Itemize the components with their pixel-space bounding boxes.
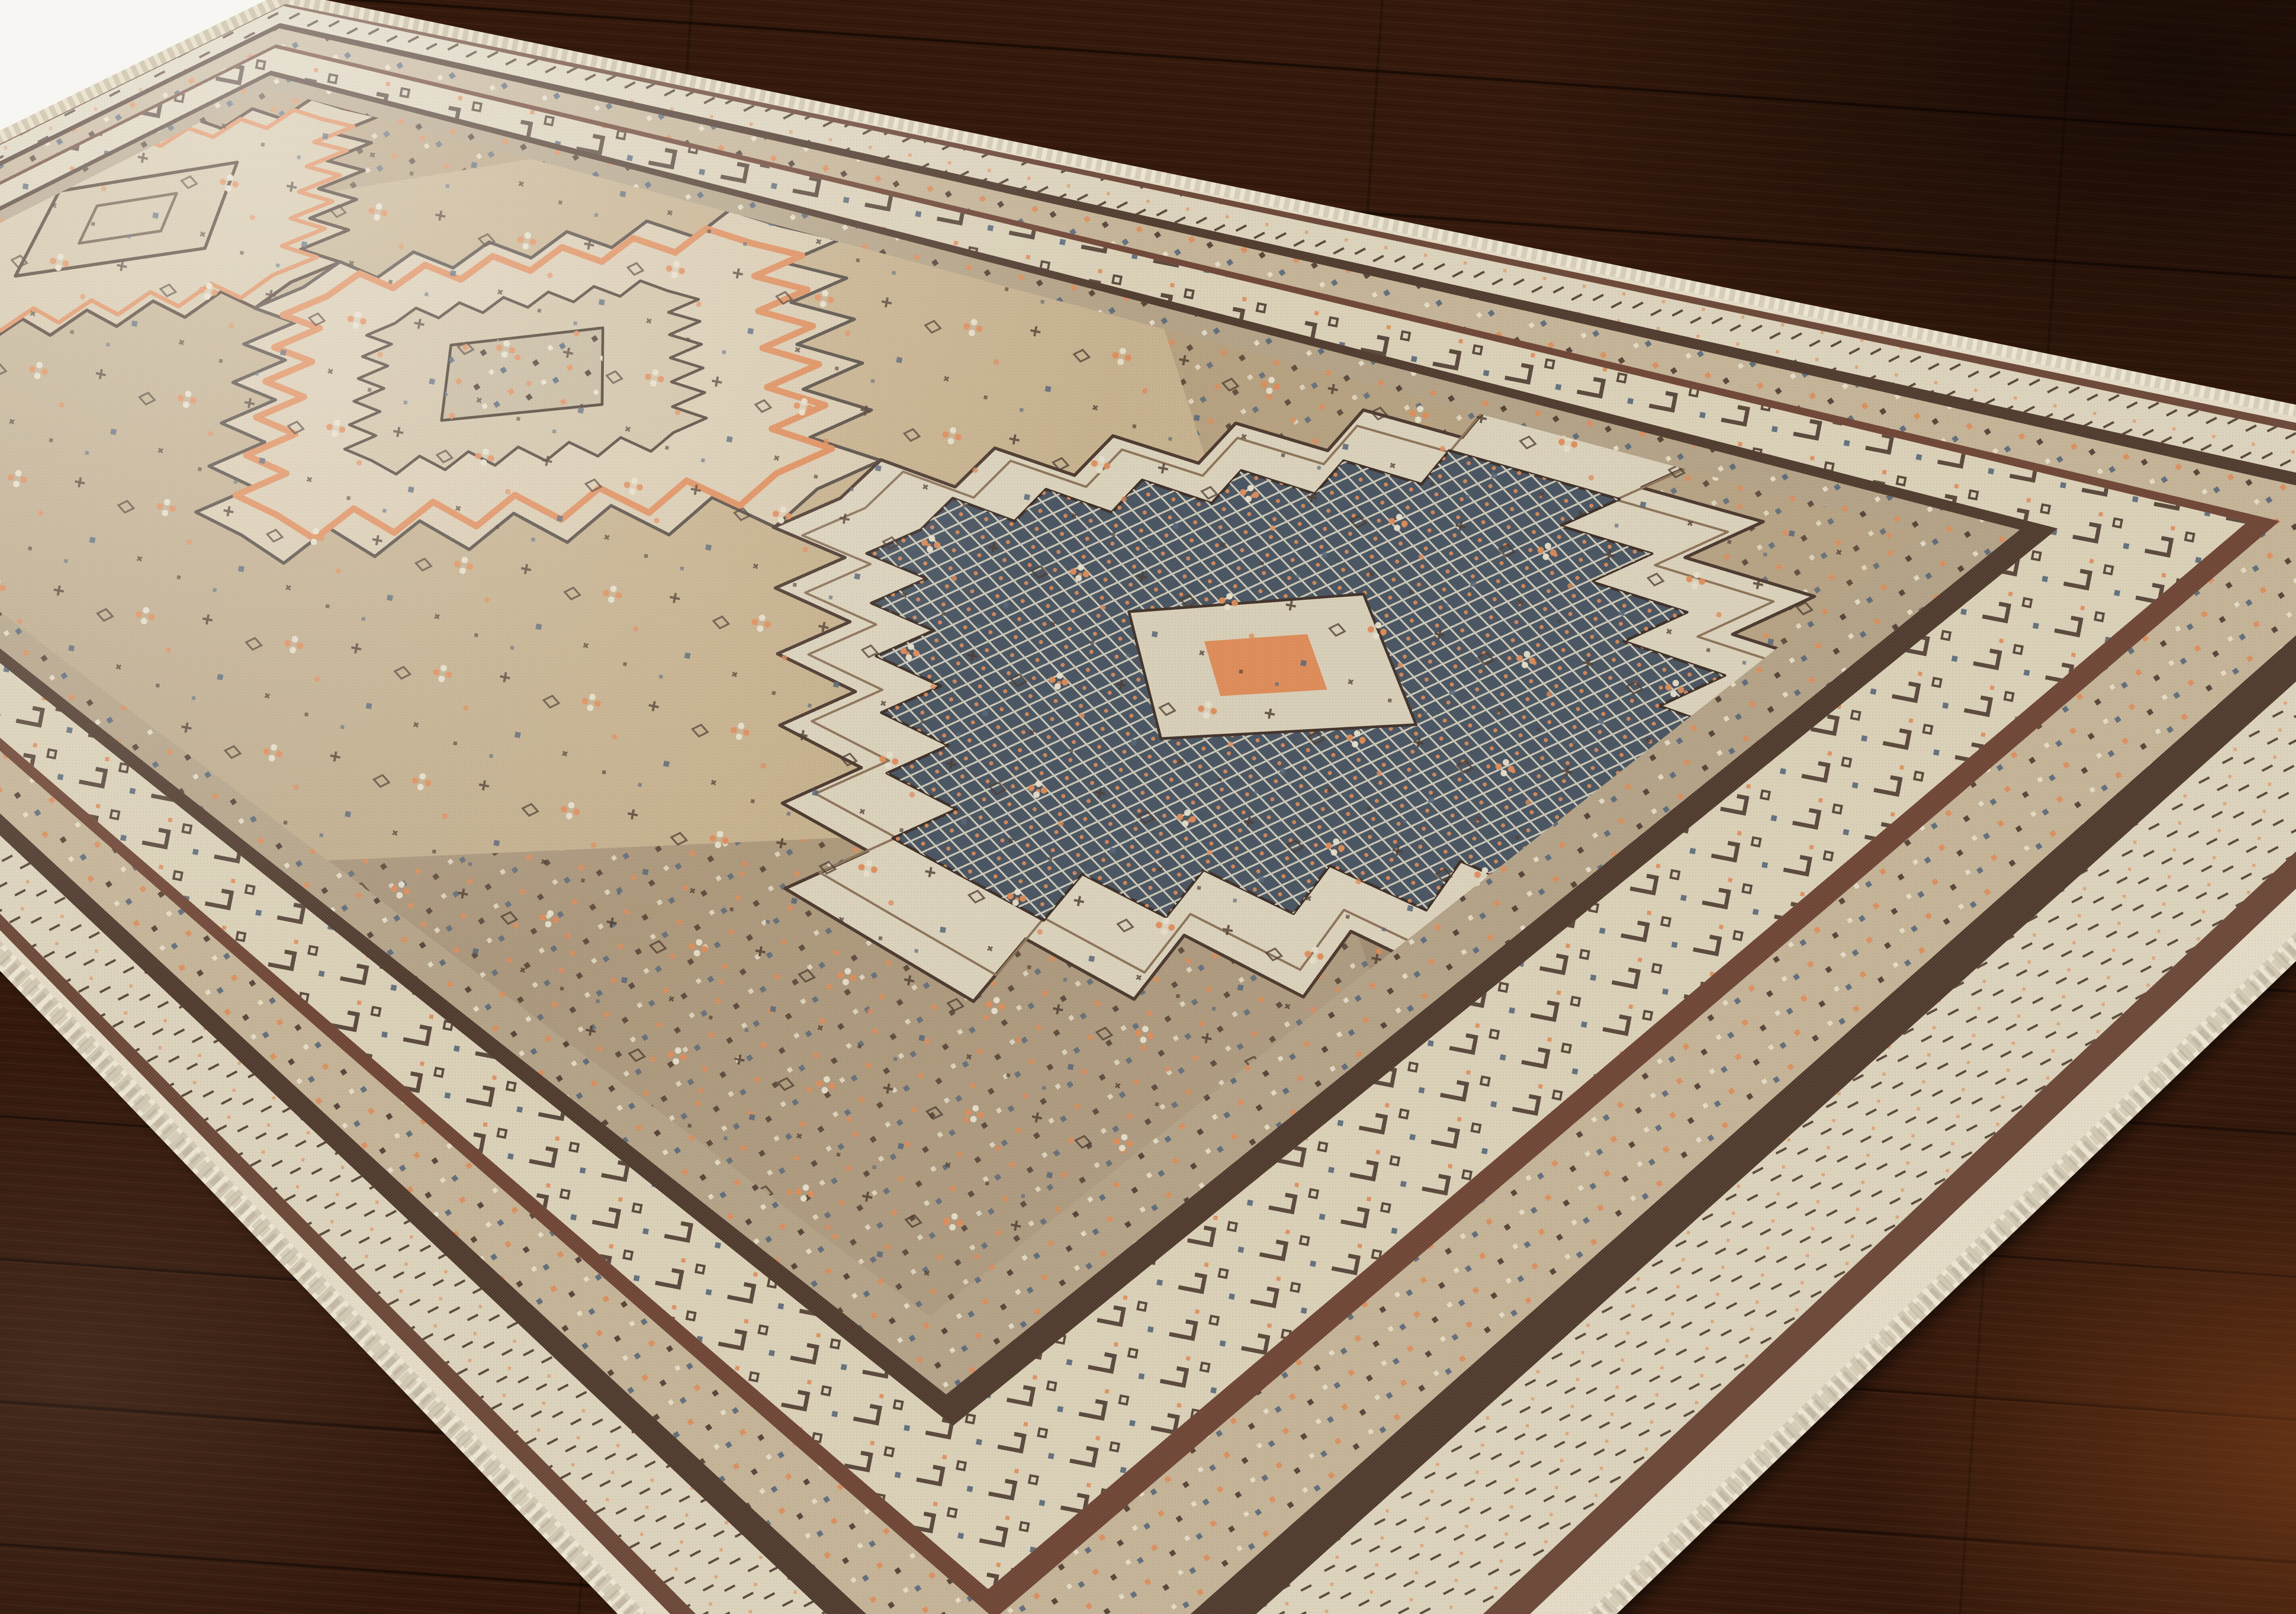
scene [0,0,2296,1614]
rug-body [0,0,2296,1614]
area-rug-photo [0,0,2296,1614]
